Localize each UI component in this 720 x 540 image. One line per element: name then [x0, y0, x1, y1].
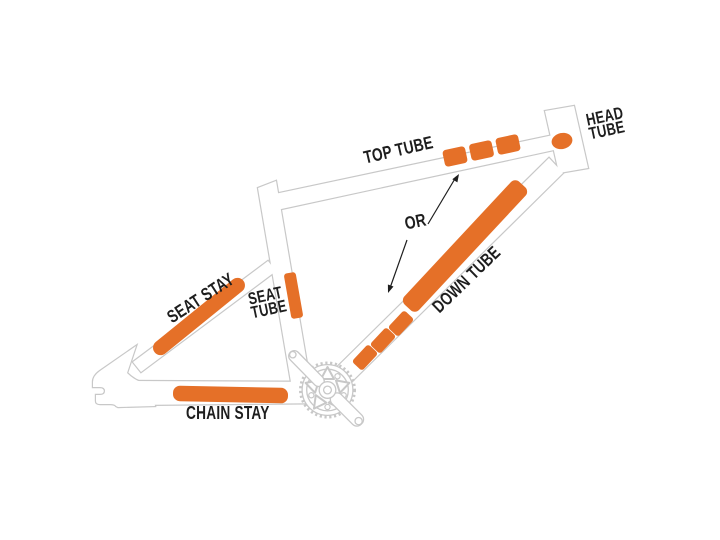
- or-arrow-down-line: [390, 240, 407, 288]
- bottom-bracket-axle: [324, 386, 332, 394]
- or-arrow-down-head: [388, 285, 394, 294]
- chain-stay-patch: [173, 386, 288, 404]
- bike-frame-diagram: TOP TUBE HEAD TUBE OR DOWN TUBE SEAT STA…: [0, 0, 720, 540]
- seat-tube-label: SEAT TUBE: [247, 285, 288, 319]
- protection-patches: [150, 131, 574, 403]
- or-label: OR: [403, 211, 428, 233]
- chain-stay-label: CHAIN STAY: [186, 404, 270, 422]
- down-tube-patches: [352, 178, 530, 371]
- head-tube-label: HEAD TUBE: [585, 106, 627, 140]
- frame-diagram-canvas: [0, 0, 720, 540]
- or-arrow-up-line: [428, 177, 456, 224]
